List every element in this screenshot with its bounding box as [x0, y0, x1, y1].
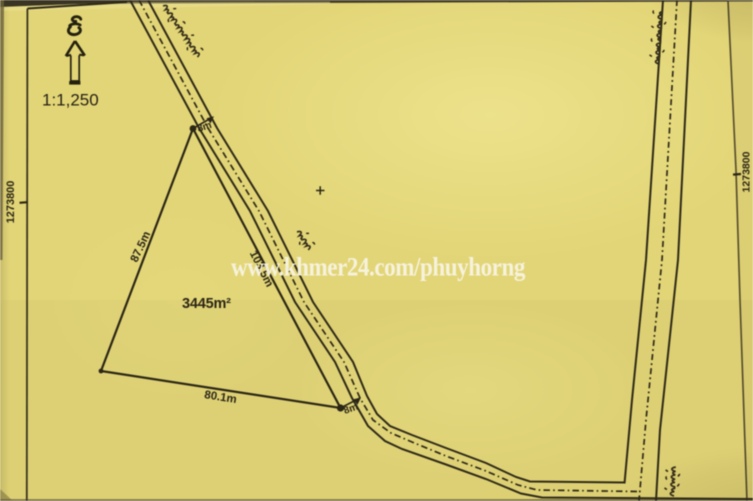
- svg-text:1273800: 1273800: [741, 151, 753, 192]
- svg-text:3445m²: 3445m²: [182, 296, 231, 312]
- svg-text:www.khmer24.com/phuyhorng: www.khmer24.com/phuyhorng: [231, 253, 526, 282]
- svg-text:1:1,250: 1:1,250: [42, 91, 99, 110]
- svg-text:1273800: 1273800: [5, 181, 17, 224]
